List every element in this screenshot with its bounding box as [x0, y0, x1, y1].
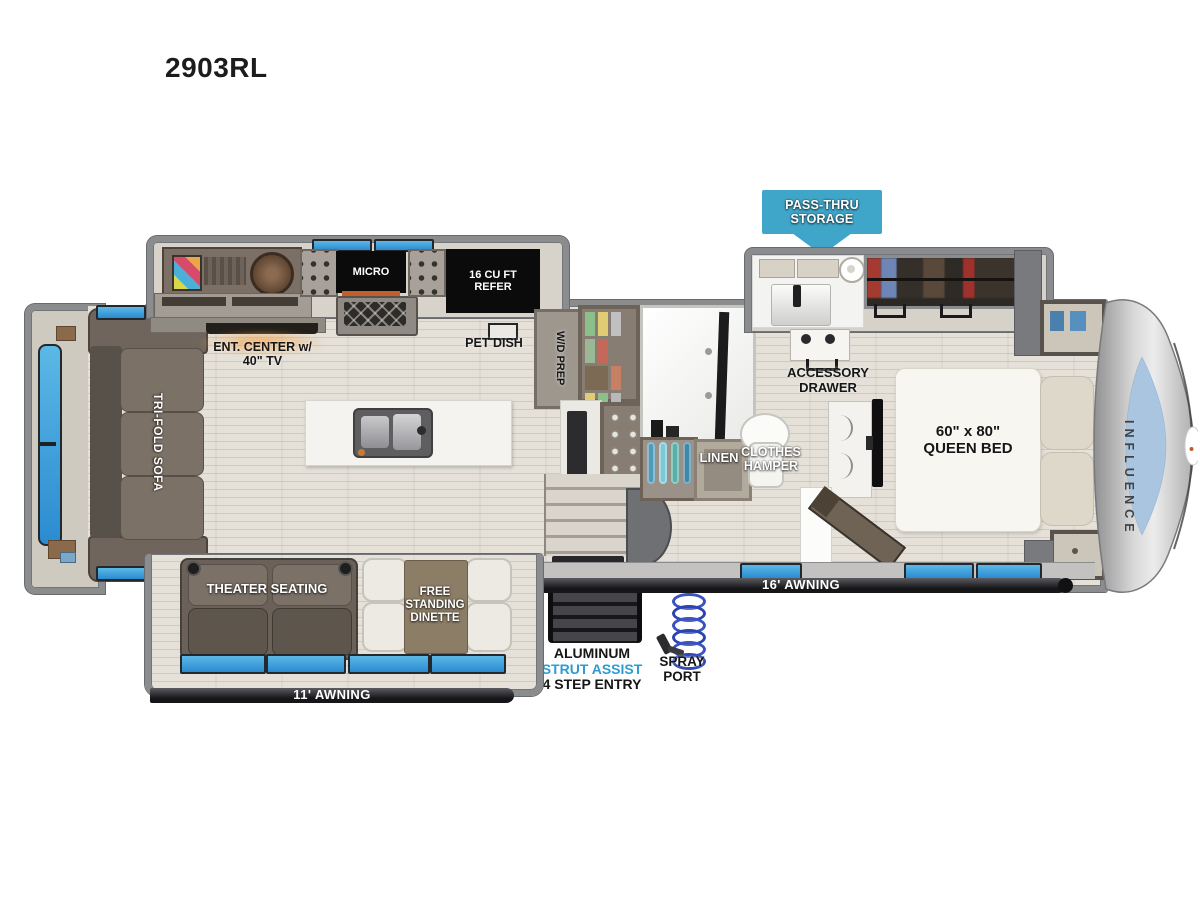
vanity-cabinet [759, 259, 795, 278]
drawer-pull-icon [874, 304, 906, 318]
accessory-drawer-unit [790, 329, 850, 361]
cupholder-icon [186, 561, 201, 576]
vanity-dish-icon [839, 257, 865, 283]
drawer-knob-icon [801, 334, 811, 344]
floorplan-canvas: 2903RL PASS-THRU STORAGE TRI-FOLD SOFA E… [0, 0, 1200, 900]
artwork-decor [172, 255, 202, 291]
pantry [578, 305, 640, 403]
microwave: MICRO [336, 251, 406, 293]
seat-cushion [188, 608, 268, 656]
towel-decor [659, 442, 667, 484]
pantry-item [585, 366, 608, 390]
dresser-door-arc [837, 453, 853, 479]
door-handle-icon [705, 392, 712, 399]
dinette-label: FREE STANDING DINETTE [390, 586, 480, 625]
towel-decor [647, 442, 655, 484]
bedroom-tv [872, 399, 883, 487]
theater-seating-label: THEATER SEATING [186, 582, 348, 597]
brand-label: INFLUENCE [1112, 372, 1136, 584]
accessory-drawer-label: ACCESSORY DRAWER [768, 366, 888, 395]
stove [336, 296, 418, 336]
magazine-decor [60, 552, 76, 563]
micro-label: MICRO [353, 266, 390, 278]
island-sink [353, 408, 433, 458]
door-handle-icon [705, 348, 712, 355]
shower-door [715, 312, 730, 442]
dresser-door-arc [837, 415, 853, 441]
bedroom-wall [1014, 250, 1042, 356]
entry-line1: ALUMINUM [536, 646, 648, 662]
cooktop-appliance [567, 411, 587, 477]
slide-window [430, 654, 506, 674]
soap-decor [358, 449, 365, 456]
nightstand-decor [1070, 311, 1086, 331]
linen-towel-cabinet [640, 437, 698, 501]
ent-counter-dark [232, 297, 298, 306]
awning-11-label: 11' AWNING [293, 688, 370, 703]
kitchen-island [305, 400, 512, 466]
pet-dish-label: PET DISH [448, 336, 540, 350]
stereo-slats-decor [204, 257, 246, 285]
spray-port-hose-icon [672, 598, 706, 650]
awning-end-cap [1058, 578, 1073, 593]
towel-decor [671, 442, 679, 484]
entry-line2: STRUT ASSIST [536, 662, 648, 678]
front-cap [1086, 291, 1198, 601]
slide-window [348, 654, 430, 674]
shower-caddy-decor [651, 420, 663, 437]
pantry-item [611, 366, 621, 390]
rear-window [38, 344, 62, 546]
model-title: 2903RL [165, 52, 268, 84]
cabinet-panel [300, 249, 338, 297]
sofa-back [90, 346, 122, 538]
pass-thru-label: PASS-THRU STORAGE [785, 198, 859, 226]
vanity-dish-center [847, 265, 855, 273]
closet-rod [867, 278, 1037, 281]
faucet-icon [793, 285, 801, 307]
window-divider [40, 442, 56, 446]
side-window [96, 566, 146, 581]
pass-thru-callout: PASS-THRU STORAGE [762, 190, 882, 234]
seat-cushion [272, 608, 352, 656]
awning-16-bar: 16' AWNING [536, 578, 1066, 593]
clothes-hamper-label: CLOTHES HAMPER [730, 445, 812, 473]
vanity [752, 255, 864, 328]
vanity-cabinet [797, 259, 839, 278]
shelf-decor [56, 326, 76, 341]
ent-center-label: ENT. CENTER w/ 40" TV [200, 340, 325, 368]
stove-grate [344, 302, 406, 326]
entry-label: ALUMINUM STRUT ASSIST 4 STEP ENTRY [536, 646, 648, 693]
entertainment-center [162, 247, 302, 297]
shower [640, 305, 756, 453]
refrigerator: 16 CU FT REFER [446, 249, 540, 313]
slide-window [266, 654, 346, 674]
hitch-pin [1190, 447, 1194, 451]
cupholder-icon [338, 561, 353, 576]
theater-seat-base [180, 558, 358, 660]
wd-prep-label: W/D PREP [546, 316, 566, 400]
nightstand-knob-icon [1072, 548, 1078, 554]
nightstand-decor [1050, 311, 1064, 331]
tv-mount [866, 436, 873, 450]
sink-basin [361, 416, 389, 448]
pantry-item [585, 312, 595, 336]
vanity-sink [771, 284, 831, 326]
slide-window [180, 654, 266, 674]
cabinet-panel [408, 249, 446, 297]
ent-counter-dark [162, 297, 226, 306]
faucet-icon [417, 426, 426, 435]
pantry-item [598, 312, 608, 336]
drawer-pull-icon [940, 304, 972, 318]
pantry-item [585, 339, 595, 363]
pantry-item [598, 339, 608, 363]
fireplace-icon [250, 252, 294, 296]
hitch-plate [1185, 427, 1198, 465]
awning-16-label: 16' AWNING [762, 578, 840, 593]
spray-port-label: SPRAY PORT [642, 654, 722, 684]
refer-label: 16 CU FT REFER [469, 269, 517, 294]
awning-11-bar: 11' AWNING [150, 688, 514, 703]
sofa-label: TRI-FOLD SOFA [146, 392, 164, 492]
side-window [96, 305, 146, 320]
entry-line3: 4 STEP ENTRY [536, 677, 648, 693]
entry-steps [548, 593, 642, 643]
pantry-item [611, 312, 621, 336]
drawer-knob-icon [825, 334, 835, 344]
queen-bed-label: 60" x 80" QUEEN BED [900, 424, 1036, 458]
